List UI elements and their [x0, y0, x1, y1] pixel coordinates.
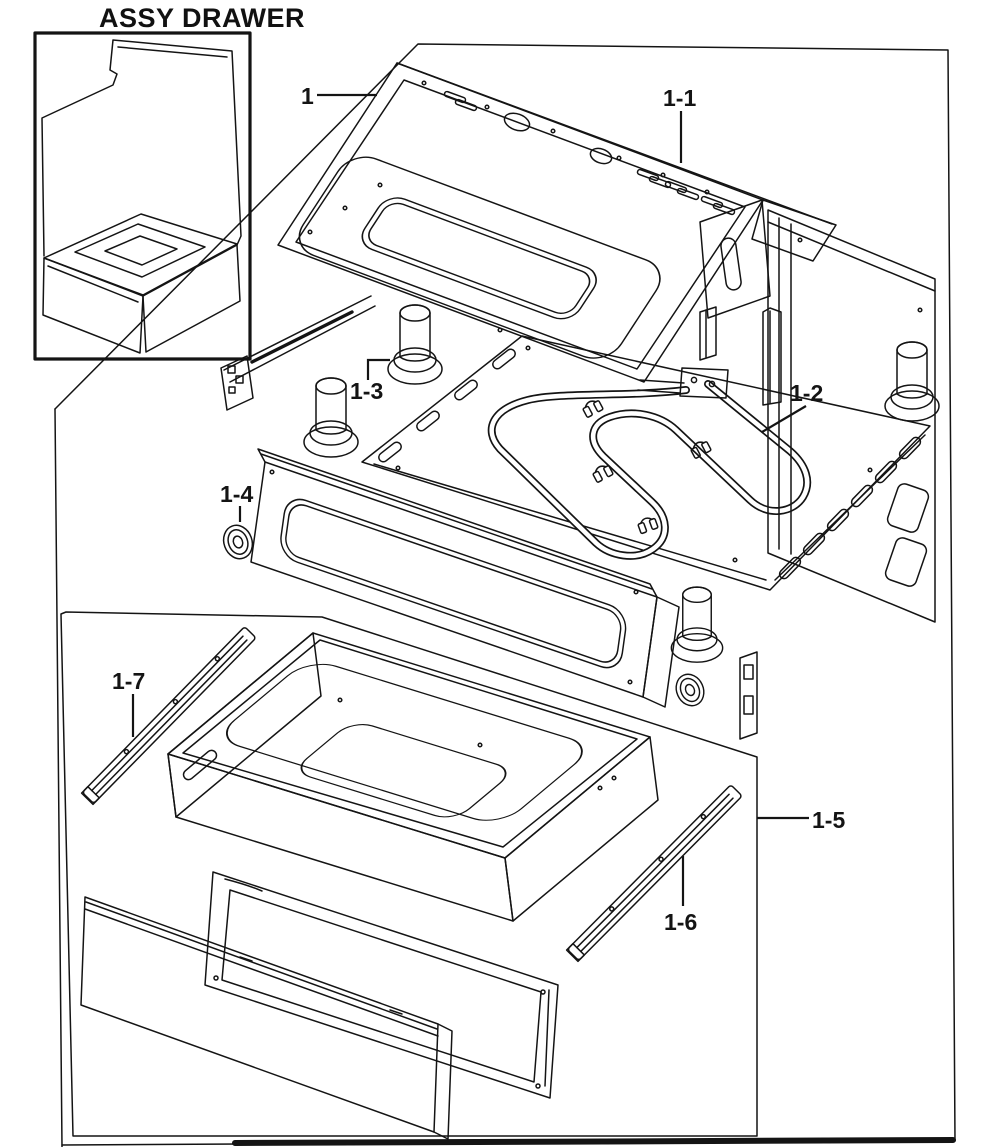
leg-roller-middle: [671, 587, 722, 662]
callout-1-2: 1-2: [790, 380, 823, 406]
slide-rail-1-7: [82, 627, 256, 805]
callout-1-1: 1-1: [663, 85, 696, 111]
callout-1-5: 1-5: [812, 807, 845, 833]
assy-drawer-exploded-diagram: 1 1-1 1-2 1-3 1-4 1-5 1-6 1-7 ASSY DRAWE…: [0, 0, 1000, 1147]
callouts: 1 1-1 1-2 1-3 1-4 1-5 1-6 1-7: [112, 83, 845, 935]
outer-page-border: [55, 44, 955, 1147]
leader-1-3: [368, 360, 390, 380]
parts-diagram-page: 1 1-1 1-2 1-3 1-4 1-5 1-6 1-7 ASSY DRAWE…: [0, 0, 1000, 1147]
inset-assembled-drawer-thumbnail: [42, 40, 241, 353]
leg-roller-right: [885, 342, 939, 421]
front-frame-panel: [251, 449, 679, 707]
leg-roller-1-3: [388, 305, 442, 384]
callout-1-7: 1-7: [112, 668, 145, 694]
callout-1: 1: [301, 83, 314, 109]
callout-1-6: 1-6: [664, 909, 697, 935]
diagram-title: ASSY DRAWER: [99, 3, 305, 33]
lower-section-border: [61, 612, 757, 1136]
drawer-top-frame: [278, 63, 836, 382]
right-side-panel: [768, 210, 935, 622]
callout-1-4: 1-4: [220, 481, 253, 507]
slide-rail-1-6: [567, 785, 743, 962]
bake-element: [492, 368, 807, 556]
drawer-front-outer-panel: [81, 897, 452, 1139]
drawer-front-inner-panel: [205, 872, 558, 1098]
rubber-cushion-lower: [671, 670, 708, 710]
callout-1-3: 1-3: [350, 378, 383, 404]
side-panel-foot-bracket: [740, 652, 757, 739]
